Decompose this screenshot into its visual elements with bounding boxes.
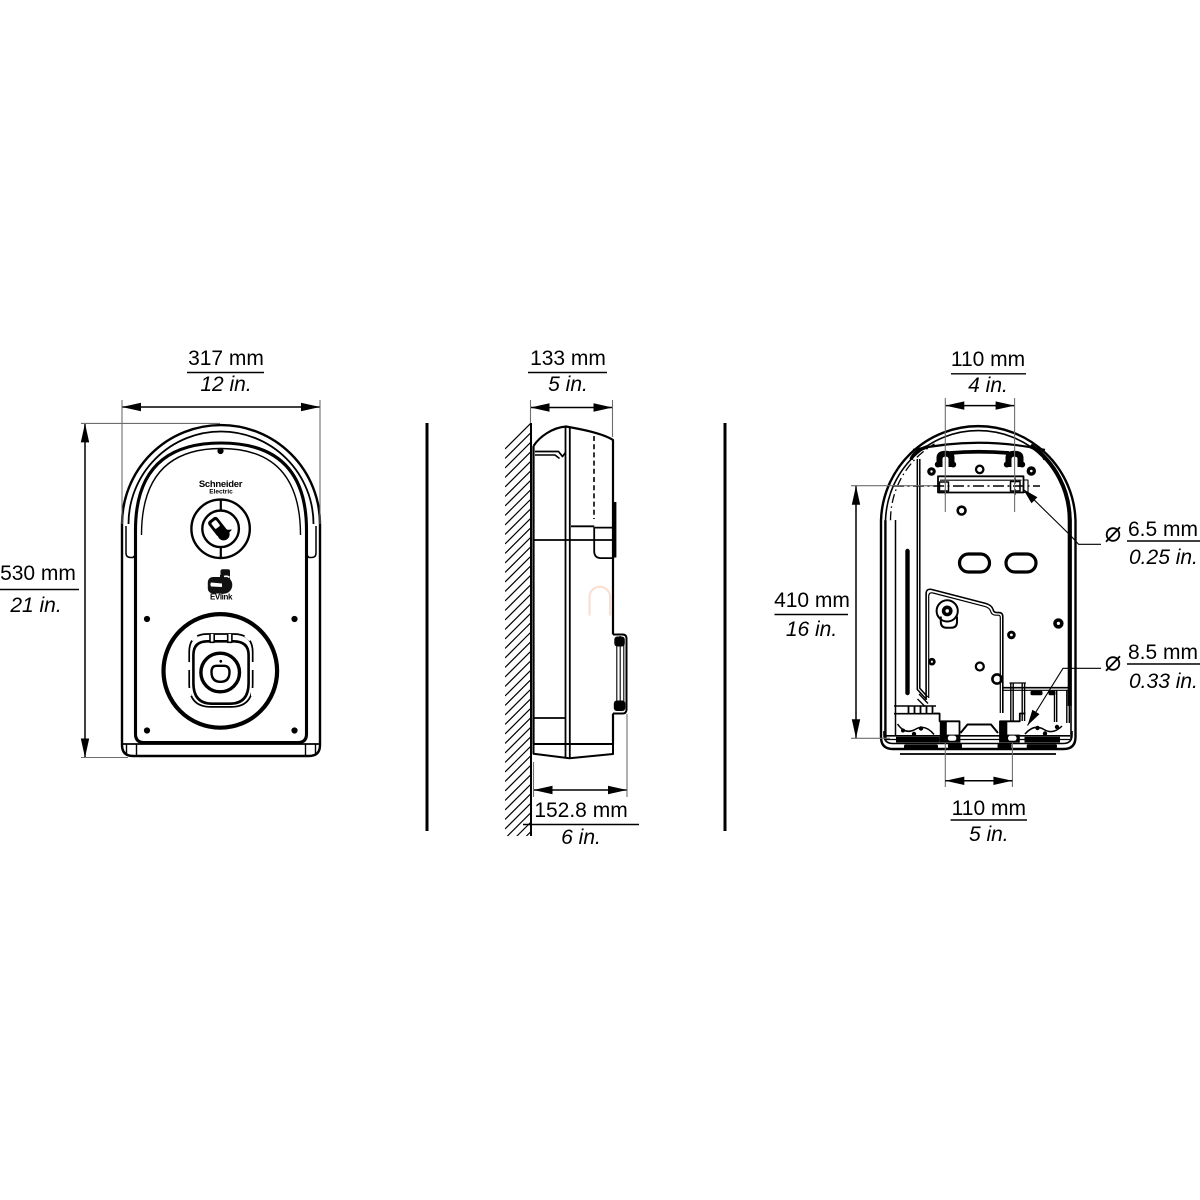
svg-text:110 mm: 110 mm bbox=[952, 797, 1026, 820]
svg-text:0.33 in.: 0.33 in. bbox=[1129, 670, 1198, 693]
svg-text:133 mm: 133 mm bbox=[530, 347, 606, 370]
svg-text:317 mm: 317 mm bbox=[188, 347, 264, 370]
svg-text:6.5 mm: 6.5 mm bbox=[1128, 518, 1198, 541]
svg-text:12 in.: 12 in. bbox=[200, 373, 251, 396]
svg-text:110 mm: 110 mm bbox=[951, 348, 1025, 371]
svg-text:0.25 in.: 0.25 in. bbox=[1129, 546, 1198, 569]
svg-text:21 in.: 21 in. bbox=[9, 594, 61, 617]
svg-text:16 in.: 16 in. bbox=[786, 618, 837, 641]
svg-text:8.5 mm: 8.5 mm bbox=[1128, 641, 1198, 664]
svg-text:152.8 mm: 152.8 mm bbox=[534, 799, 627, 822]
svg-text:530 mm: 530 mm bbox=[0, 562, 76, 585]
svg-text:5 in.: 5 in. bbox=[969, 823, 1009, 846]
svg-text:410 mm: 410 mm bbox=[774, 589, 850, 612]
svg-text:5 in.: 5 in. bbox=[548, 373, 588, 396]
svg-text:Electric: Electric bbox=[209, 489, 233, 496]
svg-text:EVlink: EVlink bbox=[210, 593, 233, 602]
svg-text:4 in.: 4 in. bbox=[968, 374, 1008, 397]
svg-text:6 in.: 6 in. bbox=[561, 826, 601, 849]
